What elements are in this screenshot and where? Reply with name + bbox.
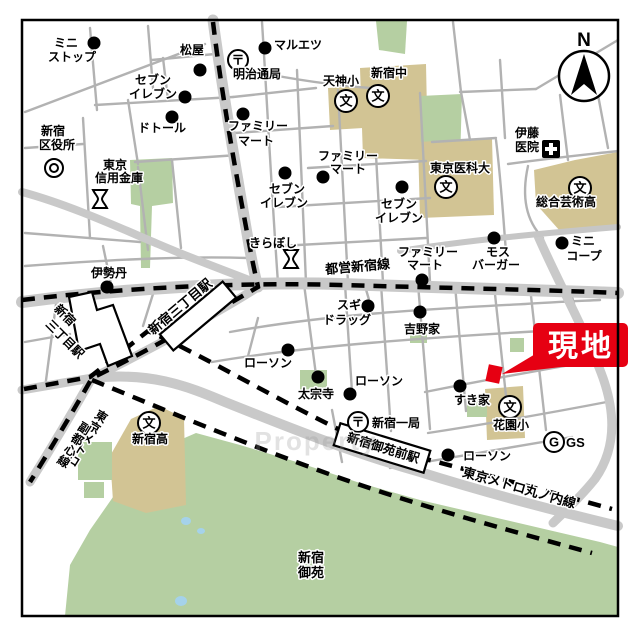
compass: N	[559, 30, 609, 101]
label-ward-office-1: 新宿	[41, 123, 65, 138]
poi-dot-isetan	[101, 281, 114, 294]
label-shinkin-2: 信用金庫	[95, 170, 143, 185]
label-shinjuku-hs: 新宿高	[132, 431, 168, 446]
poi-dot-yoshinoya	[414, 306, 427, 319]
poi-dot-mosburger	[488, 232, 501, 245]
school-icon-tokyo-medical-univ: 文	[435, 176, 457, 198]
svg-text:文: 文	[142, 416, 156, 431]
label-maruetsu: マルエツ	[274, 38, 322, 52]
label-lawson-c: ローソン	[463, 449, 511, 463]
poi-dot-lawson-b	[344, 388, 357, 401]
poi-dot-taisoji	[312, 371, 325, 384]
poi-dot-seveneleven-1	[179, 91, 192, 104]
hospital-icon-ito-clinic	[542, 140, 560, 158]
school-icon-hanazono-elementary: 文	[499, 396, 521, 418]
location-map: 文文文文文文〒〒Gミニストップ松屋マルエツ明治通局セブンイレブンドトール新宿区役…	[0, 0, 640, 640]
label-sukiya: すき家	[454, 392, 491, 407]
label-seveneleven3-2: イレブン	[375, 210, 423, 225]
label-minicoop-2: コープ	[566, 248, 602, 263]
label-gs: GS	[566, 435, 585, 450]
label-kiraboshi: きらぼし	[249, 236, 297, 250]
label-ministop-2: ストップ	[48, 49, 97, 64]
label-matsuya: 松屋	[180, 42, 204, 57]
label-gyoen-2: 御苑	[297, 565, 324, 580]
poi-dot-seveneleven-2	[279, 167, 292, 180]
watermark: Property	[255, 426, 378, 456]
poi-dot-sukiya	[454, 380, 467, 393]
north-label: N	[577, 30, 591, 51]
label-hanazono-elem: 花園小	[493, 417, 529, 432]
poi-dot-minicoop	[556, 237, 569, 250]
green-patch-top	[376, 21, 407, 54]
label-tokyo-medical: 東京医科大	[430, 160, 490, 175]
label-shinkin-1: 東京	[103, 157, 127, 172]
label-doutor: ドトール	[138, 121, 186, 135]
poi-dot-sugidrug	[362, 300, 375, 313]
pond-3	[175, 596, 187, 606]
bank-icon-tokyo-shinkin-bank	[93, 190, 107, 208]
poi-dot-familymart-3	[416, 274, 429, 287]
pond-1	[181, 517, 191, 525]
label-yoshinoya: 吉野家	[404, 321, 441, 336]
label-isetan: 伊勢丹	[90, 265, 127, 280]
svg-text:文: 文	[339, 94, 353, 109]
label-familymart3-1: ファミリー	[398, 245, 458, 259]
label-sogo-geijutsu: 総合芸術高	[536, 194, 596, 209]
poi-dot-matsuya	[194, 64, 207, 77]
poi-dot-ministop	[88, 37, 101, 50]
label-tenjin-elem: 天神小	[323, 73, 359, 88]
map-svg: 文文文文文文〒〒Gミニストップ松屋マルエツ明治通局セブンイレブンドトール新宿区役…	[0, 0, 640, 640]
label-sugidrug-1: スギ	[337, 297, 361, 312]
svg-text:文: 文	[371, 89, 385, 104]
poi-dot-familymart-2	[317, 171, 330, 184]
tokyo-medical-grounds	[418, 138, 494, 218]
label-familymart1-2: マート	[238, 134, 274, 148]
site-label: 現地	[548, 330, 614, 363]
poi-dot-maruetsu	[259, 42, 272, 55]
label-seveneleven2-1: セブン	[269, 181, 305, 196]
svg-text:G: G	[549, 435, 559, 450]
road-east-diagonal	[538, 236, 612, 523]
label-lawson-a: ローソン	[244, 356, 292, 370]
label-mosburger-2: バーガー	[472, 257, 520, 272]
label-minicoop-1: ミニ	[571, 234, 595, 248]
label-ministop-1: ミニ	[54, 36, 78, 50]
streets-minor	[25, 22, 618, 468]
poi-dot-lawson-c	[442, 449, 455, 462]
label-gyoen-1: 新宿	[298, 550, 324, 565]
site-marker	[485, 364, 502, 384]
label-familymart1-1: ファミリー	[228, 119, 288, 133]
label-seveneleven1-2: イレブン	[129, 86, 177, 101]
school-icon-tenjin-elementary: 文	[335, 90, 357, 112]
pond-2	[197, 528, 205, 534]
svg-text:〒: 〒	[231, 53, 244, 68]
label-familymart2-2: マート	[330, 162, 366, 176]
label-familymart3-2: マート	[407, 258, 443, 272]
label-ito-clinic-1: 伊藤	[514, 125, 540, 140]
label-shinjuku-1-post: 新宿一局	[372, 415, 420, 430]
school-icon-shinjuku-jhs: 文	[367, 85, 389, 107]
label-seveneleven3-1: セブン	[381, 196, 417, 211]
label-familymart2-1: ファミリー	[318, 149, 378, 163]
label-taisoji: 太宗寺	[298, 386, 334, 401]
svg-text:文: 文	[573, 181, 587, 196]
label-seveneleven1-1: セブン	[135, 72, 171, 87]
green-patch-site	[510, 338, 524, 352]
gas-icon-gas-station: G	[544, 432, 564, 452]
label-ward-office-2: 区役所	[39, 137, 75, 152]
label-ito-clinic-2: 医院	[515, 139, 539, 154]
poi-dot-lawson-a	[282, 344, 295, 357]
label-mosburger-1: モス	[486, 245, 510, 259]
green-patch-fukutoshin-2	[84, 482, 104, 498]
poi-dot-seveneleven-3	[396, 181, 409, 194]
label-sugidrug-2: ドラッグ	[323, 312, 371, 327]
gov-icon-shinjuku-ward-office	[45, 159, 63, 177]
svg-text:文: 文	[503, 400, 517, 415]
label-lawson-b: ローソン	[355, 374, 403, 388]
svg-text:文: 文	[439, 180, 453, 195]
label-meijidori-post: 明治通局	[233, 66, 281, 81]
label-shinjuku-jhs: 新宿中	[371, 65, 407, 80]
bank-icon-kiraboshi-bank	[284, 250, 298, 268]
label-seveneleven2-2: イレブン	[260, 195, 308, 210]
school-icon-shinjuku-hs: 文	[138, 412, 160, 434]
